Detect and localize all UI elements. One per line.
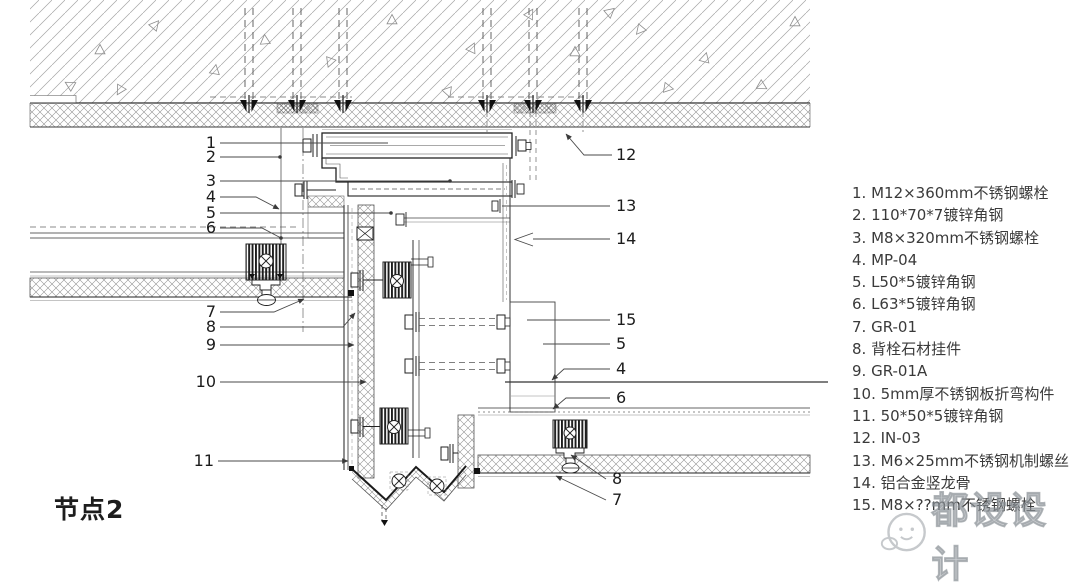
callout-14: 14 — [616, 229, 636, 248]
left-ceiling — [30, 227, 354, 306]
legend-item: 1. M12×360mm不锈钢螺栓 — [852, 182, 1078, 204]
through-bolt-lower — [405, 356, 510, 376]
keel-section-symbol — [357, 227, 373, 240]
legend-item: 12. IN-03 — [852, 427, 1078, 449]
callout-9: 9 — [206, 335, 216, 354]
callout-5r: 5 — [616, 334, 626, 353]
through-bolt-15 — [405, 312, 510, 332]
legend-item: 15. M8×??mm不锈钢螺栓 — [852, 494, 1078, 516]
callout-10: 10 — [196, 372, 216, 391]
callout-4r: 4 — [616, 359, 626, 378]
callout-8: 8 — [206, 317, 216, 336]
legend-item: 13. M6×25mm不锈钢机制螺丝 — [852, 450, 1078, 472]
legend-item: 7. GR-01 — [852, 316, 1078, 338]
callout-13: 13 — [616, 196, 636, 215]
callout-12: 12 — [616, 145, 636, 164]
callout-7r: 7 — [612, 490, 622, 509]
concrete-slab — [30, 0, 810, 103]
legend-item: 5. L50*5镀锌角钢 — [852, 271, 1078, 293]
detail-drawing-page: 1 2 3 4 5 6 7 8 9 10 11 12 13 14 15 5 4 … — [0, 0, 1080, 539]
drawing-title: 节点2 — [54, 490, 124, 526]
legend-item: 9. GR-01A — [852, 360, 1078, 382]
callout-2: 2 — [206, 147, 216, 166]
legend-item: 2. 110*70*7镀锌角钢 — [852, 204, 1078, 226]
callout-8r: 8 — [612, 469, 622, 488]
legend-item: 3. M8×320mm不锈钢螺栓 — [852, 227, 1078, 249]
legend-item: 4. MP-04 — [852, 249, 1078, 271]
legend-item: 10. 5mm厚不锈钢板折弯构件 — [852, 383, 1078, 405]
callout-15: 15 — [616, 310, 636, 329]
legend-item: 11. 50*50*5镀锌角钢 — [852, 405, 1078, 427]
right-ceiling — [441, 382, 828, 488]
callout-6r: 6 — [616, 388, 626, 407]
mortar-band — [30, 103, 810, 127]
legend-item: 8. 背栓石材挂件 — [852, 338, 1078, 360]
callout-11: 11 — [194, 451, 214, 470]
legend-item: 6. L63*5镀锌角钢 — [852, 293, 1078, 315]
material-legend: 1. M12×360mm不锈钢螺栓2. 110*70*7镀锌角钢3. M8×32… — [852, 182, 1078, 516]
legend-item: 14. 铝合金竖龙骨 — [852, 472, 1078, 494]
callout-6: 6 — [206, 218, 216, 237]
